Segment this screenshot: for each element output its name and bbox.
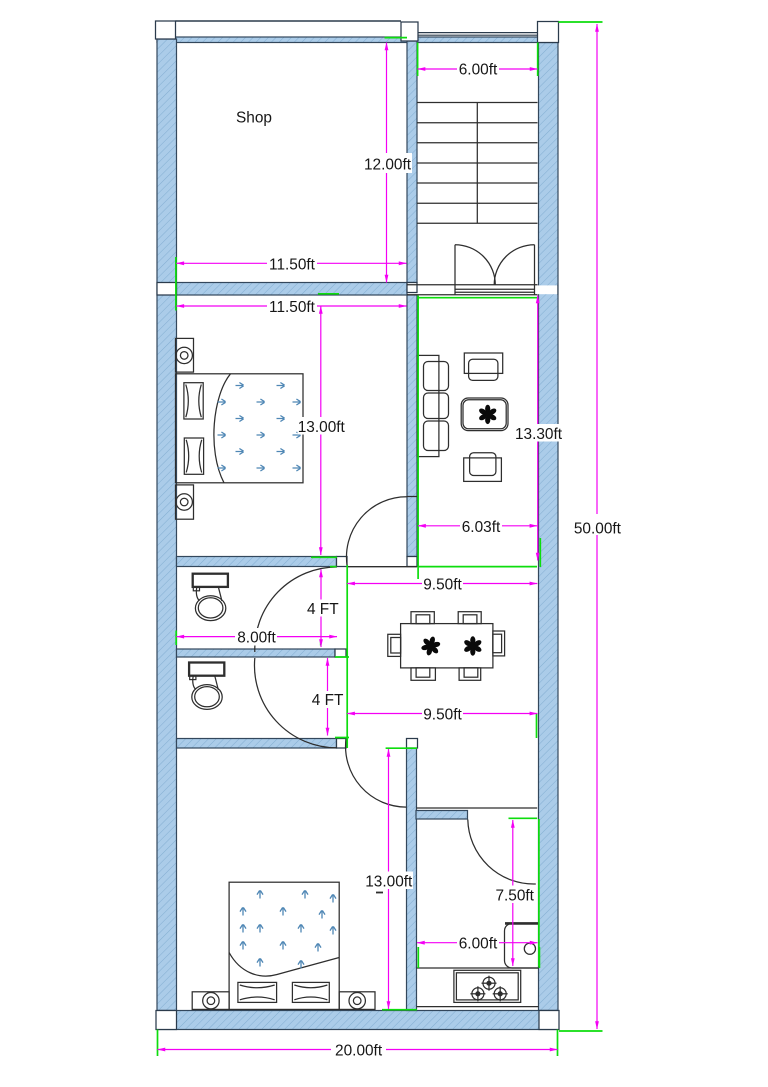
svg-text:8.00ft: 8.00ft bbox=[237, 630, 276, 647]
svg-text:13.00ft: 13.00ft bbox=[298, 419, 346, 436]
svg-text:9.50ft: 9.50ft bbox=[423, 577, 462, 594]
svg-text:6.00ft: 6.00ft bbox=[459, 62, 498, 79]
svg-text:4 FT: 4 FT bbox=[312, 692, 344, 709]
svg-text:20.00ft: 20.00ft bbox=[335, 1042, 383, 1059]
svg-text:6.03ft: 6.03ft bbox=[462, 519, 501, 536]
svg-text:7.50ft: 7.50ft bbox=[495, 887, 534, 904]
svg-text:11.50ft: 11.50ft bbox=[269, 256, 316, 273]
svg-text:9.50ft: 9.50ft bbox=[423, 707, 462, 724]
svg-text:4 FT: 4 FT bbox=[307, 601, 339, 618]
svg-text:Shop: Shop bbox=[236, 110, 272, 127]
svg-text:6.00ft: 6.00ft bbox=[459, 936, 498, 953]
svg-text:13.00ft: 13.00ft bbox=[365, 873, 413, 890]
svg-text:11.50ft: 11.50ft bbox=[269, 299, 316, 316]
svg-text:50.00ft: 50.00ft bbox=[574, 520, 622, 537]
svg-text:12.00ft: 12.00ft bbox=[364, 157, 412, 174]
svg-text:13.30ft: 13.30ft bbox=[515, 426, 563, 443]
